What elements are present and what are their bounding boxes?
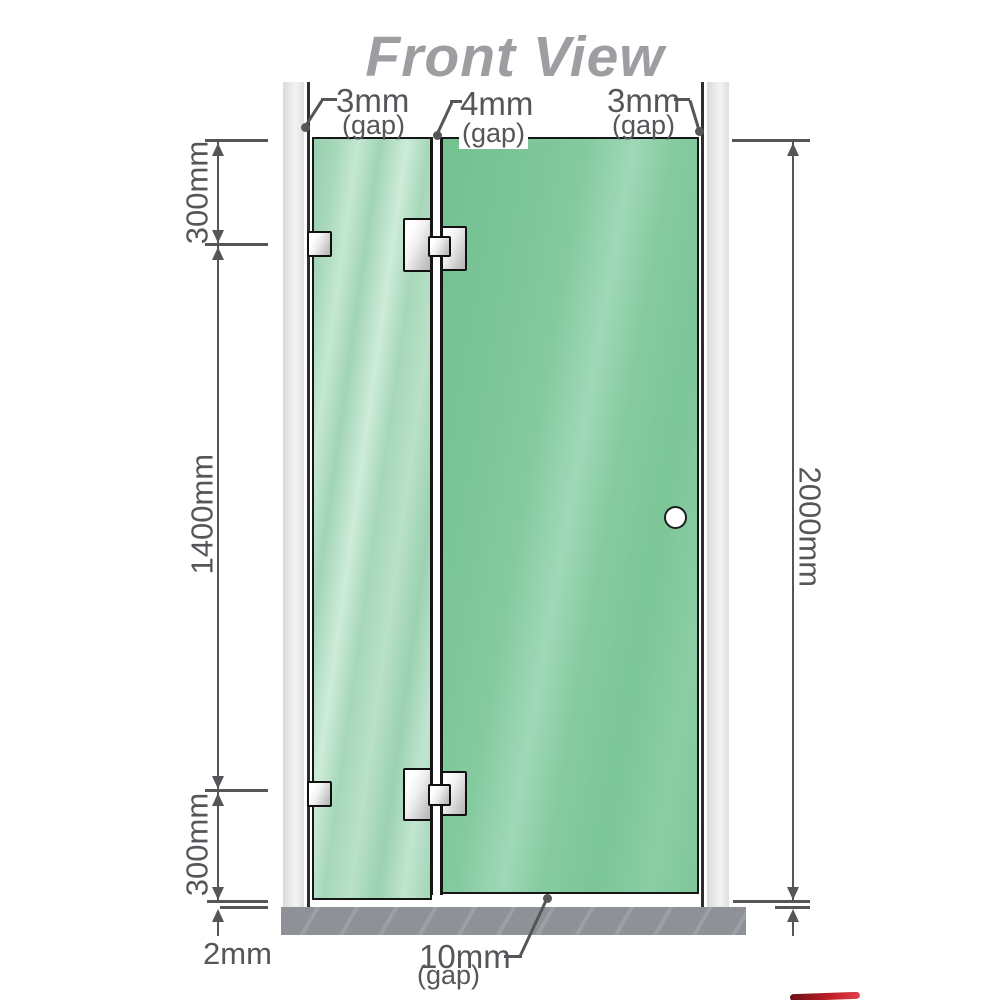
door-knob xyxy=(664,506,687,529)
bottom-hinge-knuckle xyxy=(428,784,451,806)
dim-label-1400: 1400mm xyxy=(187,455,218,575)
wall-bracket-top xyxy=(307,231,332,257)
arrow-up-icon xyxy=(787,143,799,156)
leader-dot xyxy=(543,894,552,903)
dim-label-300-bottom: 300mm xyxy=(182,785,213,905)
dim-line-300-bottom xyxy=(217,792,219,900)
front-view-diagram: Front View 300mm 1400mm 300mm 2mm xyxy=(0,0,1000,1000)
gap-label-right-unit: (gap) xyxy=(612,110,675,141)
leader-dot xyxy=(433,131,442,140)
dim-tick xyxy=(205,789,268,792)
gap-label-door-unit: (gap) xyxy=(417,960,480,991)
dim-label-300-top: 300mm xyxy=(182,133,213,253)
logo-fragment xyxy=(790,992,860,1000)
arrow-up-icon xyxy=(212,247,224,260)
dim-label-2000: 2000mm xyxy=(795,467,826,587)
top-hinge-knuckle xyxy=(428,236,451,257)
dim-tick xyxy=(220,906,268,909)
dim-line-300-top xyxy=(217,142,219,243)
left-wall-post xyxy=(283,82,304,907)
wall-bracket-bottom xyxy=(307,781,332,807)
right-wall-face-line xyxy=(701,82,704,907)
arrow-down-icon xyxy=(212,776,224,789)
gap-label-left-unit: (gap) xyxy=(342,110,405,141)
dim-line-right-tail xyxy=(792,918,794,936)
arrow-down-icon xyxy=(787,887,799,900)
dim-line-2mm-tail xyxy=(217,918,219,936)
leader-dot xyxy=(695,127,704,136)
dim-tick xyxy=(732,139,810,142)
dim-label-2mm: 2mm xyxy=(203,936,272,972)
door-glass-panel xyxy=(438,137,699,894)
dim-tick xyxy=(207,900,268,903)
leader-dot xyxy=(301,123,310,132)
dim-tick xyxy=(733,900,810,903)
floor-base-bar xyxy=(281,907,746,935)
page-title: Front View xyxy=(260,24,770,90)
right-wall-post xyxy=(707,82,729,907)
gap-label-middle-unit: (gap) xyxy=(459,118,528,149)
leader-line xyxy=(689,100,701,130)
